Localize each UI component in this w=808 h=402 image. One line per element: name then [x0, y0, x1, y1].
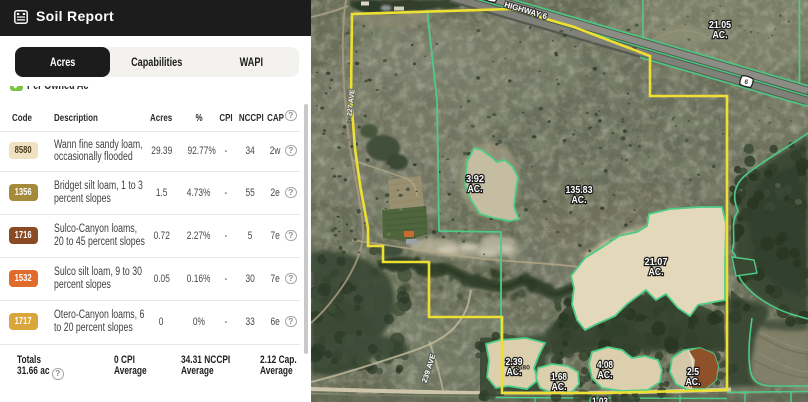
- svg-text:AC.: AC.: [572, 195, 587, 206]
- svg-text:8580: 8580: [515, 365, 531, 372]
- svg-text:AC.: AC.: [686, 377, 701, 388]
- svg-text:AC.: AC.: [649, 267, 664, 278]
- svg-text:AC.: AC.: [468, 184, 483, 195]
- svg-text:AC.: AC.: [552, 382, 567, 393]
- svg-text:AC.: AC.: [598, 370, 613, 381]
- svg-text:AC.: AC.: [713, 30, 728, 41]
- svg-text:1.03: 1.03: [592, 397, 608, 402]
